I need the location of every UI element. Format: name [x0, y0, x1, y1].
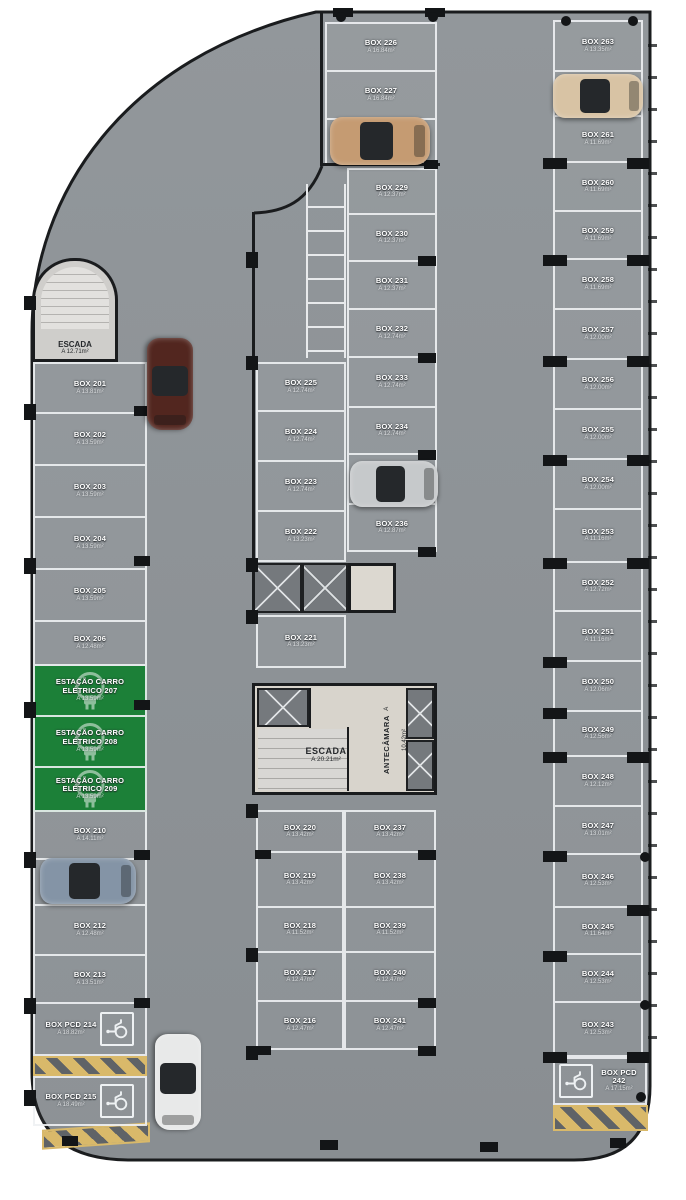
- stall-label: BOX 227: [365, 87, 397, 96]
- stall-area: A 17.15m²: [605, 1086, 632, 1093]
- stall-box-204: BOX 204A 13.59m²: [33, 518, 147, 570]
- core-stairs-area: A 20.21m²: [286, 756, 366, 763]
- stall-box-223: BOX 223A 12.74m²: [256, 462, 346, 512]
- stall-label: BOX 226: [365, 39, 397, 48]
- round-column: [561, 16, 571, 26]
- wall-rib: [648, 396, 657, 399]
- stall-area: A 13.59m²: [76, 696, 103, 703]
- stall-box-pcd-242: BOX PCD 242A 17.15m²: [553, 1057, 647, 1105]
- elevator-hall: [348, 563, 396, 613]
- stall-box-257: BOX 257A 12.00m²: [553, 310, 643, 360]
- car-blue-box-211: [40, 858, 136, 904]
- structural-column: [24, 1090, 36, 1106]
- structural-column: [480, 1142, 498, 1152]
- stall-area: A 11.69m²: [585, 140, 612, 147]
- stall-box-229: BOX 229A 12.37m²: [347, 168, 437, 215]
- stall-box-234: BOX 234A 12.74m²: [347, 408, 437, 455]
- stall-label: BOX 236: [376, 520, 408, 529]
- structural-column: [24, 852, 36, 868]
- stall-area: A 12.53m²: [584, 979, 611, 986]
- structural-column: [24, 702, 36, 718]
- stall-label: BOX 216: [284, 1017, 316, 1026]
- stall-label: BOX 250: [582, 678, 614, 687]
- elevator-shaft-2: [302, 563, 348, 613]
- car-tan-box-228: [330, 117, 430, 165]
- stall-label: BOX 256: [582, 376, 614, 385]
- stall-label: BOX 244: [582, 970, 614, 979]
- stall-box-246: BOX 246A 12.53m²: [553, 855, 643, 908]
- stall-area: A 12.00m²: [584, 335, 611, 342]
- stall-area: A 12.06m²: [584, 687, 611, 694]
- structural-column: [418, 353, 436, 363]
- stall-area: A 12.56m²: [584, 734, 611, 741]
- stall-box-213: BOX 213A 13.51m²: [33, 956, 147, 1004]
- stall-label: BOX 219: [284, 872, 316, 881]
- stall-box-212: BOX 212A 12.48m²: [33, 906, 147, 956]
- stall-box-255: BOX 255A 12.00m²: [553, 410, 643, 460]
- stall-area: A 13.59m²: [76, 440, 103, 447]
- wall-rib: [648, 684, 657, 687]
- stall-label: BOX 253: [582, 528, 614, 537]
- stall-area: A 13.59m²: [76, 747, 103, 754]
- structural-column: [610, 1138, 626, 1148]
- stall-box-236: BOX 236A 12.87m²: [347, 505, 437, 552]
- structural-column: [24, 404, 36, 420]
- structural-column: [24, 296, 36, 310]
- stall-area: A 13.23m²: [287, 642, 314, 649]
- stall-box-252: BOX 252A 12.72m²: [553, 563, 643, 612]
- structural-column: [418, 850, 436, 860]
- stall-area: A 11.69m²: [585, 285, 612, 292]
- stall-box-225: BOX 225A 12.74m²: [256, 362, 346, 412]
- stall-label: BOX 222: [285, 528, 317, 537]
- stall-area: A 12.47m²: [286, 977, 313, 984]
- stall-area: A 13.42m²: [376, 880, 403, 887]
- antechamber-label: ANTECÂMARA: [382, 715, 391, 774]
- core-elevator-shaft: [257, 688, 309, 727]
- wall-rib: [648, 172, 657, 175]
- structural-column: [627, 455, 649, 466]
- stall-label: BOX 205: [74, 587, 106, 596]
- stall-box-244: BOX 244A 12.53m²: [553, 955, 643, 1003]
- wall-rib: [648, 1036, 657, 1039]
- stall-esta-o-carro-el-trico-207: ESTAÇÃO CARRO ELÉTRICO 207A 13.59m²: [33, 666, 147, 717]
- stall-box-260: BOX 260A 11.69m²: [553, 163, 643, 212]
- structural-column: [418, 1046, 436, 1056]
- stall-label: BOX 251: [582, 628, 614, 637]
- stair-tower-top: ESCADA A 12.71m²: [32, 258, 118, 362]
- stall-label: BOX 252: [582, 579, 614, 588]
- pcd-hatch-242: [553, 1105, 648, 1131]
- stall-box-203: BOX 203A 13.59m²: [33, 466, 147, 518]
- stall-box-263: BOX 263A 13.35m²: [553, 20, 643, 72]
- stall-area: A 12.00m²: [584, 485, 611, 492]
- structural-column: [134, 700, 150, 710]
- stall-label: BOX 210: [74, 827, 106, 836]
- structural-column: [627, 1052, 649, 1063]
- wall-rib: [648, 972, 657, 975]
- stall-box-250: BOX 250A 12.06m²: [553, 662, 643, 712]
- stall-label: ESTAÇÃO CARRO ELÉTRICO 209: [35, 777, 145, 794]
- antechamber-label-group: ANTECÂMARA A 10.42m²: [378, 700, 414, 780]
- stall-area: A 12.00m²: [584, 385, 611, 392]
- stall-area: A 14.11m²: [77, 836, 104, 843]
- stall-area: A 12.48m²: [76, 644, 103, 651]
- structural-column: [543, 455, 567, 466]
- structural-column: [627, 255, 649, 266]
- stall-label: BOX 257: [582, 326, 614, 335]
- stall-box-231: BOX 231A 12.37m²: [347, 262, 437, 310]
- structural-column: [627, 752, 649, 763]
- stall-box-253: BOX 253A 11.16m²: [553, 510, 643, 563]
- structural-column: [418, 450, 436, 460]
- stall-label: BOX 258: [582, 276, 614, 285]
- stall-label: BOX 247: [582, 822, 614, 831]
- stall-box-254: BOX 254A 12.00m²: [553, 460, 643, 510]
- stall-area: A 12.72m²: [584, 587, 611, 594]
- stall-esta-o-carro-el-trico-209: ESTAÇÃO CARRO ELÉTRICO 209A 13.59m²: [33, 768, 147, 812]
- car-brown-aisle: [147, 338, 193, 430]
- structural-column: [543, 752, 567, 763]
- wall-rib: [648, 204, 657, 207]
- structural-column: [543, 158, 567, 169]
- stall-label: BOX 243: [582, 1021, 614, 1030]
- stall-area: A 12.74m²: [378, 334, 405, 341]
- wall-rib: [648, 268, 657, 271]
- structural-column: [418, 998, 436, 1008]
- structural-column: [424, 160, 438, 169]
- stall-box-241: BOX 241A 12.47m²: [344, 1002, 436, 1050]
- round-column: [628, 16, 638, 26]
- topmid-left-wall: [320, 12, 323, 166]
- stall-area: A 13.59m²: [76, 544, 103, 551]
- stall-area: A 16.84m²: [367, 96, 394, 103]
- structural-column: [246, 558, 258, 572]
- stall-label: BOX 221: [285, 634, 317, 643]
- car-white-aisle: [155, 1034, 201, 1130]
- stall-label: BOX 260: [582, 179, 614, 188]
- stall-esta-o-carro-el-trico-208: ESTAÇÃO CARRO ELÉTRICO 208A 13.59m²: [33, 717, 147, 768]
- stall-area: A 12.53m²: [584, 881, 611, 888]
- structural-column: [246, 610, 258, 624]
- stall-label: BOX PCD 214: [46, 1021, 97, 1030]
- stall-label: BOX 238: [374, 872, 406, 881]
- stall-label: BOX 224: [285, 428, 317, 437]
- structural-column: [543, 851, 567, 862]
- pcd-hatch-214: [33, 1056, 147, 1076]
- stall-area: A 13.42m²: [286, 880, 313, 887]
- stall-label: BOX 218: [284, 922, 316, 931]
- stall-area: A 12.74m²: [287, 487, 314, 494]
- stall-area: A 12.47m²: [376, 977, 403, 984]
- car-beige-box-262: [553, 74, 643, 118]
- stall-label: BOX 248: [582, 773, 614, 782]
- stall-box-240: BOX 240A 12.47m²: [344, 953, 436, 1002]
- stall-box-259: BOX 259A 11.69m²: [553, 212, 643, 260]
- wall-rib: [648, 460, 657, 463]
- wheelchair-icon: [559, 1064, 593, 1098]
- stall-box-230: BOX 230A 12.37m²: [347, 215, 437, 262]
- wall-rib: [648, 940, 657, 943]
- stall-box-220: BOX 220A 13.42m²: [256, 810, 344, 853]
- stall-box-248: BOX 248A 12.12m²: [553, 757, 643, 807]
- wall-rib: [648, 556, 657, 559]
- stall-area: A 11.52m²: [287, 930, 314, 937]
- stall-area: A 12.00m²: [584, 435, 611, 442]
- stall-label: BOX 204: [74, 535, 106, 544]
- stall-label: BOX 261: [582, 131, 614, 140]
- structural-column: [246, 804, 258, 818]
- stair-treads: [41, 267, 109, 329]
- wheelchair-icon: [100, 1012, 134, 1046]
- stall-label: BOX 230: [376, 230, 408, 239]
- wall-rib: [648, 300, 657, 303]
- stall-label: BOX 232: [376, 325, 408, 334]
- stall-area: A 13.23m²: [287, 537, 314, 544]
- wall-rib: [648, 44, 657, 47]
- structural-column: [320, 1140, 338, 1150]
- stall-label: BOX 246: [582, 873, 614, 882]
- structural-column: [134, 850, 150, 860]
- stall-label: BOX 241: [374, 1017, 406, 1026]
- wall-rib: [648, 716, 657, 719]
- wall-rib: [648, 620, 657, 623]
- stall-area: A 13.42m²: [376, 832, 403, 839]
- wall-rib: [648, 780, 657, 783]
- stall-label: BOX 249: [582, 726, 614, 735]
- stall-area: A 13.59m²: [76, 794, 103, 801]
- stall-label: BOX 203: [74, 483, 106, 492]
- structural-column: [246, 948, 258, 962]
- stall-box-206: BOX 206A 12.48m²: [33, 622, 147, 666]
- elevator-shaft-1: [253, 563, 302, 613]
- wall-rib: [648, 364, 657, 367]
- structural-column: [24, 998, 36, 1014]
- stall-box-217: BOX 217A 12.47m²: [256, 953, 344, 1002]
- stall-area: A 11.64m²: [585, 931, 612, 938]
- round-column: [636, 1092, 646, 1102]
- stall-label: BOX PCD 215: [46, 1093, 97, 1102]
- stall-label: BOX 213: [74, 971, 106, 980]
- stall-label: BOX 239: [374, 922, 406, 931]
- stall-label: BOX 234: [376, 423, 408, 432]
- stall-label: ESTAÇÃO CARRO ELÉTRICO 208: [35, 729, 145, 746]
- wall-rib: [648, 236, 657, 239]
- round-column: [336, 12, 346, 22]
- stall-label: BOX 259: [582, 227, 614, 236]
- stall-area: A 12.74m²: [287, 437, 314, 444]
- stall-label: BOX 223: [285, 478, 317, 487]
- pedestrian-hatch-zone: [306, 184, 346, 358]
- stall-label: BOX 254: [582, 476, 614, 485]
- stall-label: BOX 245: [582, 923, 614, 932]
- wall-rib: [648, 76, 657, 79]
- stall-box-227: BOX 227A 16.84m²: [325, 72, 437, 120]
- stall-box-243: BOX 243A 12.53m²: [553, 1003, 643, 1057]
- core-stairs-label-group: ESCADA A 20.21m²: [286, 746, 366, 763]
- stall-label: BOX 237: [374, 824, 406, 833]
- wall-rib: [648, 812, 657, 815]
- wall-rib: [648, 876, 657, 879]
- structural-column: [627, 356, 649, 367]
- stall-box-256: BOX 256A 12.00m²: [553, 360, 643, 410]
- stall-box-pcd-214: BOX PCD 214A 18.82m²: [33, 1004, 147, 1056]
- wheelchair-icon: [100, 1084, 134, 1118]
- wall-rib: [648, 108, 657, 111]
- stall-area: A 12.37m²: [378, 286, 405, 293]
- structural-column: [543, 1052, 567, 1063]
- structural-column: [418, 547, 436, 557]
- stall-label: BOX 263: [582, 38, 614, 47]
- stall-area: A 13.01m²: [584, 831, 611, 838]
- stall-area: A 12.74m²: [378, 383, 405, 390]
- stall-area: A 18.49m²: [57, 1102, 84, 1109]
- stall-area: A 12.87m²: [378, 528, 405, 535]
- stall-area: A 11.52m²: [377, 930, 404, 937]
- structural-column: [543, 558, 567, 569]
- stair-tower-label: ESCADA: [35, 340, 115, 349]
- stall-label: BOX 225: [285, 379, 317, 388]
- stall-label: ESTAÇÃO CARRO ELÉTRICO 207: [35, 678, 145, 695]
- structural-column: [627, 905, 649, 916]
- stall-area: A 12.47m²: [286, 1026, 313, 1033]
- structural-column: [134, 998, 150, 1008]
- stall-box-251: BOX 251A 11.16m²: [553, 612, 643, 662]
- stall-box-232: BOX 232A 12.74m²: [347, 310, 437, 358]
- structural-column: [255, 850, 271, 859]
- stall-box-205: BOX 205A 13.59m²: [33, 570, 147, 622]
- structural-column: [134, 556, 150, 566]
- stall-label: BOX 231: [376, 277, 408, 286]
- stall-area: A 11.16m²: [585, 536, 612, 543]
- stall-box-224: BOX 224A 12.74m²: [256, 412, 346, 462]
- wall-rib: [648, 140, 657, 143]
- stall-area: A 12.74m²: [287, 388, 314, 395]
- stall-box-210: BOX 210A 14.11m²: [33, 812, 147, 860]
- parking-floor-plan: { "plan_title": "Parking level floor pla…: [0, 0, 686, 1200]
- wall-rib: [648, 588, 657, 591]
- stall-area: A 11.16m²: [585, 637, 612, 644]
- wall-rib: [648, 492, 657, 495]
- stall-area: A 11.69m²: [585, 187, 612, 194]
- stall-area: A 13.51m²: [76, 980, 103, 987]
- stall-label: BOX 217: [284, 969, 316, 978]
- stall-box-238: BOX 238A 13.42m²: [344, 853, 436, 908]
- stall-area: A 12.47m²: [376, 1026, 403, 1033]
- stall-area: A 12.37m²: [378, 192, 405, 199]
- stall-label: BOX 255: [582, 426, 614, 435]
- structural-column: [24, 558, 36, 574]
- stall-box-233: BOX 233A 12.74m²: [347, 358, 437, 408]
- round-column: [428, 12, 438, 22]
- stall-area: A 12.12m²: [584, 782, 611, 789]
- wall-rib: [648, 1004, 657, 1007]
- stall-box-258: BOX 258A 11.69m²: [553, 260, 643, 310]
- stall-label: BOX 206: [74, 635, 106, 644]
- stall-area: A 13.35m²: [584, 47, 611, 54]
- stall-box-219: BOX 219A 13.42m²: [256, 853, 344, 908]
- structural-column: [543, 951, 567, 962]
- structural-column: [246, 356, 258, 370]
- stall-box-202: BOX 202A 13.59m²: [33, 414, 147, 466]
- core-stairs-label: ESCADA: [286, 746, 366, 756]
- stall-label: BOX 233: [376, 374, 408, 383]
- stall-box-222: BOX 222A 13.23m²: [256, 512, 346, 562]
- stall-box-226: BOX 226A 16.84m²: [325, 22, 437, 72]
- wall-rib: [648, 428, 657, 431]
- structural-column: [543, 356, 567, 367]
- wall-rib: [648, 652, 657, 655]
- structural-column: [62, 1136, 78, 1146]
- stall-area: A 12.48m²: [76, 931, 103, 938]
- stall-label: BOX 202: [74, 431, 106, 440]
- structural-column: [627, 158, 649, 169]
- stall-area: A 13.59m²: [76, 596, 103, 603]
- stall-label: BOX 229: [376, 184, 408, 193]
- stall-box-201: BOX 201A 13.81m²: [33, 362, 147, 414]
- round-column: [640, 852, 650, 862]
- stall-area: A 12.74m²: [378, 431, 405, 438]
- stall-area: A 12.37m²: [378, 238, 405, 245]
- stall-label: BOX PCD 242: [597, 1069, 641, 1086]
- stall-label: BOX 212: [74, 922, 106, 931]
- stall-box-247: BOX 247A 13.01m²: [553, 807, 643, 855]
- stall-box-221: BOX 221A 13.23m²: [256, 615, 346, 668]
- wall-rib: [648, 908, 657, 911]
- interior-wall-mid: [252, 212, 255, 615]
- stall-box-237: BOX 237A 13.42m²: [344, 810, 436, 853]
- stall-box-pcd-215: BOX PCD 215A 18.49m²: [33, 1076, 147, 1126]
- wall-rib: [648, 524, 657, 527]
- structural-column: [627, 558, 649, 569]
- wall-rib: [648, 332, 657, 335]
- stall-box-261: BOX 261A 11.69m²: [553, 117, 643, 163]
- structural-column: [543, 657, 567, 668]
- stall-label: BOX 240: [374, 969, 406, 978]
- structural-column: [418, 256, 436, 266]
- stall-box-239: BOX 239A 11.52m²: [344, 908, 436, 953]
- wall-rib: [648, 748, 657, 751]
- stall-area: A 13.81m²: [76, 389, 103, 396]
- car-silver-box-235: [350, 461, 438, 507]
- structural-column: [543, 708, 567, 719]
- stall-area: A 13.42m²: [286, 832, 313, 839]
- structural-column: [255, 1046, 271, 1055]
- stall-area: A 11.69m²: [585, 236, 612, 243]
- structural-column: [246, 252, 258, 268]
- stall-area: A 13.59m²: [76, 492, 103, 499]
- stall-area: A 12.53m²: [584, 1030, 611, 1037]
- stair-tower-area: A 12.71m²: [35, 349, 115, 355]
- wall-rib: [648, 844, 657, 847]
- stall-area: A 18.82m²: [57, 1030, 84, 1037]
- stall-area: A 16.84m²: [367, 48, 394, 55]
- stall-box-216: BOX 216A 12.47m²: [256, 1002, 344, 1050]
- stall-box-218: BOX 218A 11.52m²: [256, 908, 344, 953]
- stall-label: BOX 220: [284, 824, 316, 833]
- structural-column: [543, 255, 567, 266]
- stall-label: BOX 201: [74, 380, 106, 389]
